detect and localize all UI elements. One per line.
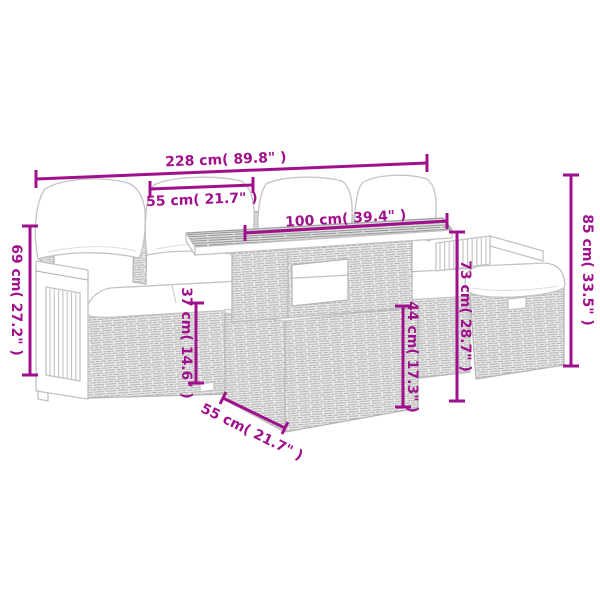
dimension-label: 228 cm( 89.8" )	[165, 150, 287, 171]
armrest-slats	[50, 289, 76, 381]
dimension-label: 73 cm( 28.7" )	[457, 260, 473, 372]
dimension-label: 44 cm( 17.3" )	[404, 301, 420, 413]
ottoman-handle	[508, 297, 526, 310]
armrest-top-rail	[490, 236, 543, 261]
armrest-foot	[38, 391, 48, 401]
table-base-front-face	[285, 306, 418, 432]
dimension-label: 69 cm( 27.2" )	[8, 244, 24, 356]
dimension-label: 37 cm( 14.6" )	[178, 287, 194, 399]
ottoman-cushion	[465, 263, 565, 297]
dimension-label: 85 cm( 33.5" )	[579, 214, 595, 326]
dimension-armrest-height: 69 cm( 27.2" )	[8, 226, 38, 375]
furniture-line-drawing: 228 cm( 89.8" ) 55 cm( 21.7" ) 100 cm( 3…	[0, 0, 600, 600]
ottoman	[465, 263, 565, 379]
left-armrest	[36, 261, 88, 401]
dimension-total-height: 85 cm( 33.5" )	[563, 175, 595, 366]
product-dimension-diagram: 228 cm( 89.8" ) 55 cm( 21.7" ) 100 cm( 3…	[0, 0, 600, 600]
